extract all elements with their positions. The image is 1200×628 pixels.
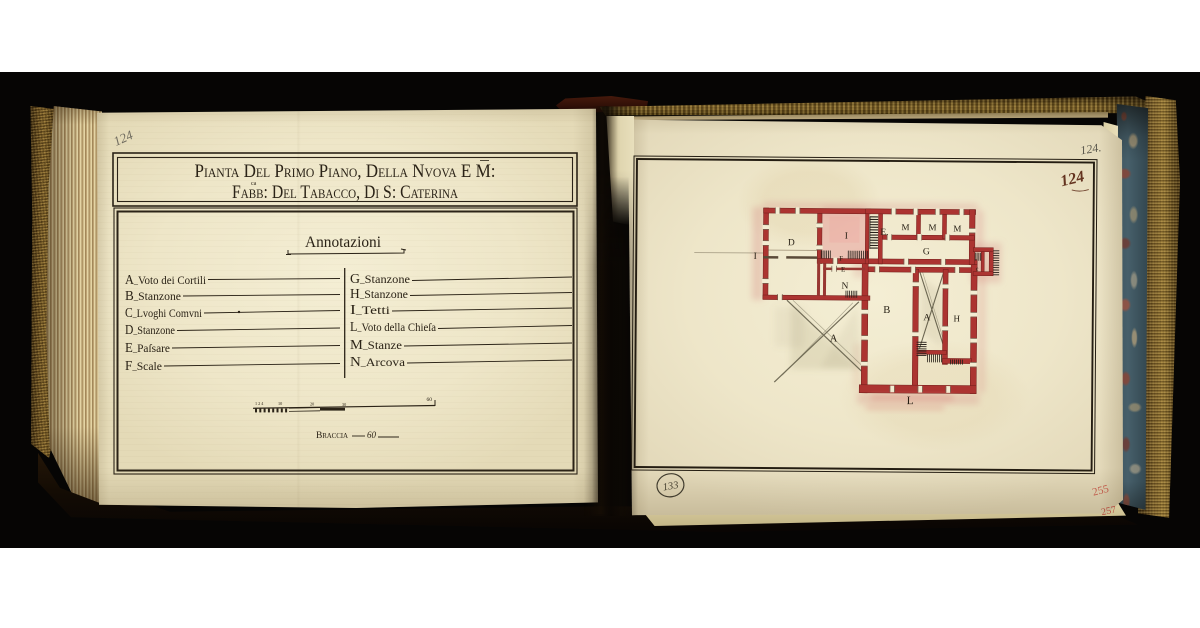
svg-text:124: 124 <box>1059 168 1086 190</box>
svg-text:N_Arcova: N_Arcova <box>350 354 406 369</box>
svg-text:F: F <box>839 255 843 263</box>
svg-text:M: M <box>953 223 961 233</box>
svg-text:E: E <box>841 266 845 274</box>
svg-text:L_Voto della Chieſa: L_Voto della Chieſa <box>350 319 437 334</box>
svg-text:Braccia: Braccia <box>316 431 348 441</box>
svg-text:133: 133 <box>662 480 679 493</box>
svg-text:H: H <box>953 313 960 323</box>
svg-text:I: I <box>754 252 757 262</box>
svg-text:H_Stanzone: H_Stanzone <box>350 286 408 301</box>
svg-text:A_Voto dei Cortili: A_Voto dei Cortili <box>125 272 207 287</box>
svg-text:E.: E. <box>880 228 888 238</box>
svg-text:M: M <box>928 222 936 232</box>
svg-text:I_Tetti: I_Tetti <box>350 302 391 317</box>
svg-text:F_Scale: F_Scale <box>125 358 162 373</box>
svg-text:257: 257 <box>1100 504 1117 518</box>
svg-text:124.: 124. <box>1079 140 1102 157</box>
svg-text:M: M <box>901 222 909 232</box>
svg-text:60: 60 <box>367 430 377 440</box>
svg-text:C_Lvoghi Comvni: C_Lvoghi Comvni <box>125 305 203 320</box>
svg-text:60: 60 <box>427 397 433 403</box>
svg-text:N: N <box>842 282 849 292</box>
svg-text:255: 255 <box>1091 483 1110 499</box>
svg-text:L: L <box>907 395 914 407</box>
svg-text:Annotazioni: Annotazioni <box>305 234 382 251</box>
svg-text:1 2 4: 1 2 4 <box>255 401 264 406</box>
svg-text:I: I <box>845 232 848 242</box>
svg-text:D_Stanzone: D_Stanzone <box>125 322 175 337</box>
svg-text:c: c <box>976 267 979 273</box>
svg-text:A: A <box>923 313 930 323</box>
svg-text:10: 10 <box>278 401 282 406</box>
svg-text:B_Stanzone: B_Stanzone <box>125 288 181 303</box>
svg-text:G: G <box>923 247 930 257</box>
svg-text:20: 20 <box>310 402 314 407</box>
svg-text:M_Stanze: M_Stanze <box>350 337 402 352</box>
svg-text:G_Stanzone: G_Stanzone <box>350 271 410 286</box>
svg-text:30: 30 <box>342 402 346 407</box>
svg-text:E_Paſsare: E_Paſsare <box>125 340 170 355</box>
svg-text:Pianta Del Primo Piano, Della: Pianta Del Primo Piano, Della Nvova E M: <box>195 161 496 182</box>
svg-text:D: D <box>788 238 795 248</box>
svg-text:B: B <box>883 305 890 316</box>
svg-text:124: 124 <box>111 127 135 149</box>
svg-text:A: A <box>830 334 838 345</box>
svg-text:Fabb: Del Tabacco, Di S: Cater: Fabb: Del Tabacco, Di S: Caterina <box>232 183 459 203</box>
